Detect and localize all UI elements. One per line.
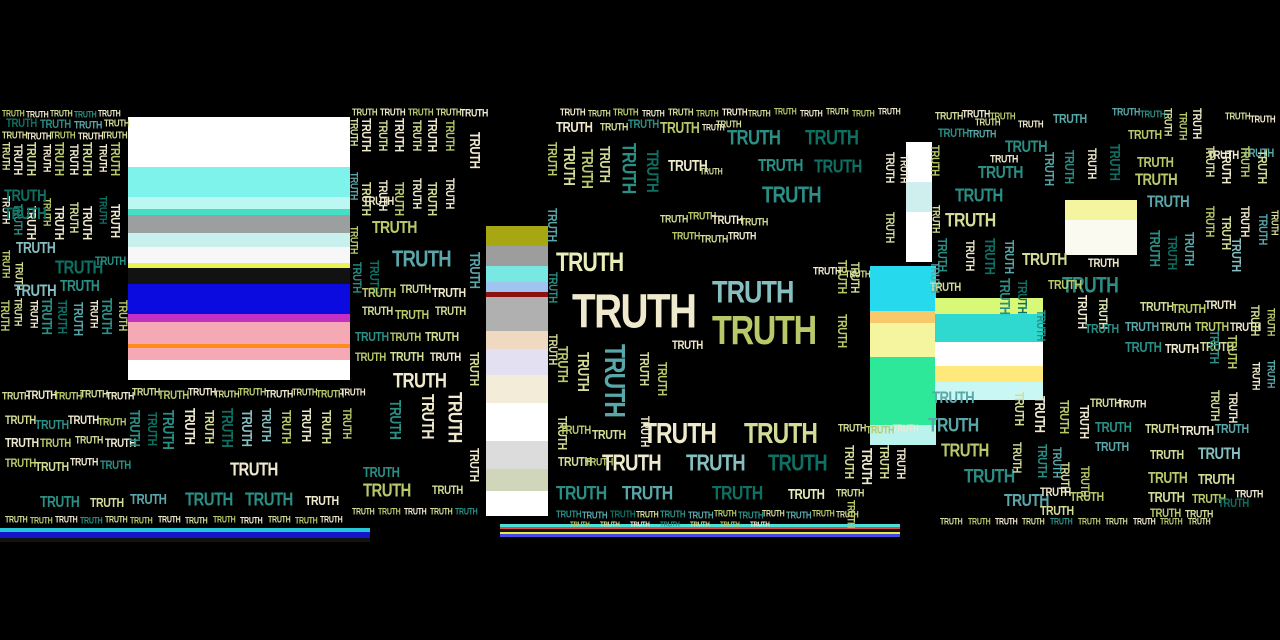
word-truth: TRUTH (355, 330, 389, 343)
word-truth: TRUTH (998, 278, 1012, 314)
word-truth: TRUTH (158, 516, 180, 525)
word-truth: TRUTH (622, 483, 673, 503)
word-truth: TRUTH (1088, 258, 1119, 270)
word-truth: TRUTH (1220, 150, 1233, 184)
word-truth: TRUTH (0, 250, 9, 278)
word-truth: TRUTH (968, 518, 990, 527)
word-truth: TRUTH (1022, 252, 1067, 270)
word-truth: TRUTH (963, 240, 975, 271)
word-truth: TRUTH (130, 492, 166, 506)
glitch-stripe (486, 375, 548, 403)
word-truth: TRUTH (878, 445, 891, 479)
word-truth: TRUTH (613, 108, 638, 118)
word-truth: TRUTH (30, 517, 52, 526)
glitch-stripe (870, 323, 936, 357)
glitch-stripe (128, 233, 350, 247)
word-truth: TRUTH (1190, 108, 1202, 139)
word-truth: TRUTH (714, 510, 736, 519)
word-truth: TRUTH (102, 131, 127, 141)
word-truth: TRUTH (560, 425, 591, 437)
word-truth: TRUTH (1264, 308, 1275, 336)
word-truth: TRUTH (1225, 112, 1250, 122)
word-truth: TRUTH (35, 460, 69, 473)
word-truth: TRUTH (1050, 518, 1072, 527)
word-truth: TRUTH (700, 235, 728, 246)
word-truth: TRUTH (26, 390, 57, 402)
word-truth: TRUTH (1249, 362, 1260, 390)
word-truth: TRUTH (105, 516, 127, 525)
word-truth: TRUTH (35, 418, 69, 431)
word-truth: TRUTH (280, 410, 293, 444)
word-truth: TRUTH (556, 510, 581, 520)
word-truth: TRUTH (836, 314, 849, 348)
word-truth: TRUTH (893, 424, 918, 434)
word-truth: TRUTH (372, 220, 417, 238)
word-truth: TRUTH (592, 428, 626, 441)
word-truth: TRUTH (1118, 400, 1146, 411)
glitch-stripe (128, 197, 350, 209)
word-truth: TRUTH (728, 232, 756, 243)
word-truth: TRUTH (712, 215, 743, 227)
word-truth: TRUTH (432, 286, 466, 299)
word-truth: TRUTH (866, 426, 894, 437)
word-truth: TRUTH (744, 419, 817, 448)
word-truth: TRUTH (1180, 424, 1214, 437)
word-truth: TRUTH (1205, 300, 1236, 312)
word-truth: TRUTH (836, 489, 864, 500)
word-truth: TRUTH (1040, 487, 1071, 499)
word-truth: TRUTH (435, 306, 466, 318)
word-truth: TRUTH (1188, 518, 1210, 527)
word-truth: TRUTH (55, 516, 77, 525)
word-truth: TRUTH (1256, 150, 1269, 184)
word-truth: TRUTH (98, 418, 126, 429)
word-truth: TRUTH (860, 448, 874, 484)
word-truth: TRUTH (628, 119, 659, 131)
word-truth: TRUTH (1058, 400, 1071, 434)
word-truth: TRUTH (5, 436, 39, 449)
word-truth: TRUTH (762, 184, 821, 207)
word-truth: TRUTH (940, 518, 962, 527)
word-truth: TRUTH (1095, 440, 1129, 453)
word-truth: TRUTH (100, 460, 131, 472)
word-truth: TRUTH (80, 390, 108, 401)
word-truth: TRUTH (1176, 112, 1187, 140)
word-truth: TRUTH (546, 208, 559, 242)
word-truth: TRUTH (1085, 322, 1119, 335)
word-truth: TRUTH (1147, 194, 1189, 211)
word-truth: TRUTH (1050, 447, 1062, 478)
word-truth: TRUTH (106, 392, 134, 403)
word-truth: TRUTH (393, 371, 446, 392)
word-truth: TRUTH (340, 388, 365, 398)
word-truth: TRUTH (690, 521, 710, 529)
word-truth: TRUTH (600, 123, 628, 134)
word-truth: TRUTH (560, 108, 585, 118)
word-truth: TRUTH (843, 445, 856, 479)
word-truth: TRUTH (305, 494, 339, 507)
word-truth: TRUTH (1230, 238, 1243, 272)
word-truth: TRUTH (844, 500, 855, 528)
word-truth: TRUTH (40, 298, 54, 334)
word-truth: TRUTH (935, 112, 963, 123)
word-truth: TRUTH (1053, 112, 1087, 125)
word-truth: TRUTH (894, 448, 906, 479)
word-truth: TRUTH (468, 448, 481, 482)
word-truth: TRUTH (786, 511, 811, 521)
word-truth: TRUTH (748, 110, 770, 119)
word-truth: TRUTH (556, 250, 623, 276)
word-truth: TRUTH (1165, 342, 1199, 355)
word-truth: TRUTH (1043, 152, 1056, 186)
word-truth: TRUTH (363, 481, 411, 500)
word-truth: TRUTH (109, 204, 122, 238)
glitch-stripe (128, 314, 350, 322)
word-truth: TRUTH (975, 118, 1000, 128)
glitch-stripe (0, 538, 370, 542)
word-truth: TRUTH (932, 390, 974, 407)
word-truth: TRUTH (146, 412, 159, 446)
word-truth: TRUTH (582, 511, 607, 521)
word-truth: TRUTH (964, 466, 1015, 486)
word-truth: TRUTH (1148, 470, 1187, 485)
word-truth: TRUTH (96, 144, 107, 172)
glitch-band (1065, 200, 1137, 255)
word-truth: TRUTH (1095, 420, 1131, 434)
word-truth: TRUTH (556, 346, 570, 382)
word-truth: TRUTH (668, 108, 693, 118)
word-truth: TRUTH (390, 350, 424, 363)
word-truth: TRUTH (430, 352, 461, 364)
word-truth: TRUTH (812, 510, 834, 519)
word-truth: TRUTH (638, 352, 651, 386)
glitch-stripe (935, 314, 1043, 342)
word-truth: TRUTH (388, 400, 403, 439)
word-truth: TRUTH (185, 517, 207, 526)
word-truth: TRUTH (1256, 214, 1268, 245)
word-truth: TRUTH (774, 108, 796, 117)
word-truth: TRUTH (929, 205, 940, 233)
word-truth: TRUTH (814, 157, 862, 176)
word-truth: TRUTH (78, 132, 103, 142)
word-truth: TRUTH (395, 308, 429, 321)
word-truth: TRUTH (1108, 144, 1122, 180)
word-truth: TRUTH (800, 110, 822, 119)
word-truth: TRUTH (883, 212, 895, 243)
word-truth: TRUTH (1226, 392, 1238, 423)
word-truth: TRUTH (11, 144, 23, 175)
word-truth: TRUTH (100, 298, 114, 334)
word-truth: TRUTH (572, 288, 695, 336)
glitch-stripe (500, 534, 900, 537)
glitch-stripe (128, 247, 350, 263)
word-truth: TRUTH (630, 521, 650, 529)
word-truth: TRUTH (826, 108, 848, 117)
word-truth: TRUTH (95, 256, 126, 268)
word-truth: TRUTH (70, 458, 98, 469)
word-truth: TRUTH (941, 441, 989, 460)
word-truth: TRUTH (158, 390, 189, 402)
word-truth: TRUTH (4, 188, 46, 205)
word-truth: TRUTH (546, 142, 559, 176)
word-truth: TRUTH (1048, 278, 1082, 291)
word-truth: TRUTH (1248, 305, 1260, 336)
glitch-stripe (128, 167, 350, 197)
word-truth: TRUTH (40, 494, 79, 509)
word-truth: TRUTH (1040, 504, 1074, 517)
word-truth: TRUTH (750, 521, 770, 529)
word-truth: TRUTH (426, 118, 439, 152)
word-truth: TRUTH (1198, 472, 1234, 486)
word-truth: TRUTH (300, 408, 313, 442)
word-truth: TRUTH (1016, 280, 1029, 314)
word-truth: TRUTH (104, 119, 129, 129)
word-truth: TRUTH (455, 508, 477, 517)
word-truth: TRUTH (805, 128, 858, 149)
glitch-stripe (128, 268, 350, 284)
word-truth: TRUTH (845, 270, 870, 280)
word-truth: TRUTH (436, 108, 461, 118)
word-truth: TRUTH (53, 142, 66, 176)
word-truth: TRUTH (762, 510, 784, 519)
word-truth: TRUTH (1105, 518, 1127, 527)
word-truth: TRUTH (1250, 115, 1275, 125)
word-truth: TRUTH (1070, 490, 1104, 503)
word-truth: TRUTH (644, 150, 661, 192)
word-truth: TRUTH (268, 516, 290, 525)
word-truth: TRUTH (360, 118, 373, 152)
word-truth: TRUTH (1264, 360, 1275, 388)
word-truth: TRUTH (580, 149, 595, 188)
word-truth: TRUTH (363, 196, 394, 208)
word-truth: TRUTH (660, 510, 685, 520)
word-truth: TRUTH (727, 128, 780, 149)
word-truth: TRUTH (1203, 146, 1215, 177)
glitch-stripe (486, 331, 548, 349)
word-truth: TRUTH (68, 415, 99, 427)
word-truth: TRUTH (696, 110, 718, 119)
word-truth: TRUTH (556, 120, 592, 134)
word-truth: TRUTH (1161, 108, 1172, 136)
word-truth: TRUTH (260, 408, 273, 442)
glitch-stripe (486, 349, 548, 375)
word-truth: TRUTH (362, 306, 393, 318)
word-truth: TRUTH (1148, 230, 1162, 266)
word-truth: TRUTH (53, 206, 66, 240)
word-truth: TRUTH (1140, 300, 1174, 313)
word-truth: TRUTH (183, 408, 197, 444)
word-truth: TRUTH (245, 490, 293, 509)
word-truth: TRUTH (1172, 302, 1206, 315)
word-truth: TRUTH (619, 143, 639, 194)
word-truth: TRUTH (660, 120, 699, 135)
word-truth: TRUTH (688, 511, 713, 521)
glitch-band (870, 266, 936, 445)
word-truth: TRUTH (1183, 232, 1196, 266)
word-truth: TRUTH (238, 388, 266, 399)
glitch-stripe (870, 311, 936, 323)
word-truth: TRUTH (109, 142, 122, 176)
word-truth: TRUTH (1160, 518, 1182, 527)
word-truth: TRUTH (445, 392, 465, 443)
word-truth: TRUTH (74, 111, 96, 120)
word-truth: TRUTH (352, 108, 377, 118)
word-truth: TRUTH (1003, 240, 1016, 274)
glitch-stripe (128, 215, 350, 233)
word-truth: TRUTH (897, 155, 908, 183)
word-truth: TRUTH (376, 120, 388, 151)
word-truth: TRUTH (788, 487, 824, 501)
word-truth: TRUTH (1018, 120, 1043, 130)
word-truth: TRUTH (25, 142, 38, 176)
word-truth: TRUTH (128, 410, 142, 446)
word-truth: TRUTH (1133, 518, 1155, 527)
word-truth: TRUTH (443, 120, 455, 151)
word-truth: TRUTH (1013, 392, 1026, 426)
word-truth: TRUTH (588, 110, 610, 119)
glitch-stripe (935, 366, 1043, 382)
word-truth: TRUTH (643, 419, 716, 448)
glitch-stripe (128, 348, 350, 360)
word-truth: TRUTH (570, 521, 590, 529)
word-truth: TRUTH (936, 238, 949, 272)
word-truth: TRUTH (562, 146, 577, 185)
word-truth: TRUTH (347, 226, 358, 254)
word-truth: TRUTH (265, 390, 293, 401)
word-truth: TRUTH (1063, 150, 1076, 184)
word-truth: TRUTH (1034, 310, 1046, 341)
word-truth: TRUTH (214, 390, 239, 400)
word-truth: TRUTH (185, 490, 233, 509)
glitch-stripe (128, 117, 350, 167)
word-truth: TRUTH (1226, 335, 1239, 369)
word-cloud-canvas: TRUTHTRUTHTRUTHTRUTHTRUTHTRUTHTRUTHTRUTH… (0, 0, 1280, 640)
word-truth: TRUTH (378, 508, 400, 517)
word-truth: TRUTH (1022, 518, 1044, 527)
word-truth: TRUTH (1010, 442, 1022, 473)
word-truth: TRUTH (1135, 172, 1177, 189)
word-truth: TRUTH (1128, 128, 1162, 141)
word-truth: TRUTH (672, 232, 700, 243)
glitch-stripe (486, 469, 548, 491)
word-truth: TRUTH (67, 144, 79, 175)
word-truth: TRUTH (930, 282, 961, 294)
glitch-band (486, 226, 548, 516)
word-truth: TRUTH (40, 438, 71, 450)
word-truth: TRUTH (686, 452, 745, 475)
glitch-stripe (128, 284, 350, 314)
word-truth: TRUTH (878, 108, 900, 117)
word-truth: TRUTH (393, 182, 406, 216)
word-truth: TRUTH (1125, 320, 1159, 333)
word-truth: TRUTH (392, 248, 451, 271)
word-truth: TRUTH (81, 206, 94, 240)
word-truth: TRUTH (80, 517, 102, 526)
word-truth: TRUTH (1145, 422, 1179, 435)
word-truth: TRUTH (430, 508, 452, 517)
word-truth: TRUTH (26, 132, 51, 142)
word-truth: TRUTH (1085, 148, 1097, 179)
glitch-stripe (870, 357, 936, 425)
word-truth: TRUTH (1208, 330, 1221, 364)
word-truth: TRUTH (660, 521, 680, 529)
word-truth: TRUTH (4, 206, 46, 223)
word-truth: TRUTH (1203, 206, 1215, 237)
word-truth: TRUTH (1215, 422, 1249, 435)
word-truth: TRUTH (1166, 236, 1179, 270)
word-truth: TRUTH (116, 300, 128, 331)
word-truth: TRUTH (660, 215, 688, 226)
word-truth: TRUTH (418, 394, 436, 439)
word-truth: TRUTH (556, 483, 607, 503)
word-truth: TRUTH (995, 518, 1017, 527)
word-truth: TRUTH (87, 300, 98, 328)
word-truth: TRUTH (292, 388, 317, 398)
word-truth: TRUTH (1238, 206, 1250, 237)
word-truth: TRUTH (598, 146, 612, 182)
word-truth: TRUTH (1238, 146, 1250, 177)
word-truth: TRUTH (0, 300, 10, 331)
word-truth: TRUTH (883, 152, 895, 183)
word-truth: TRUTH (738, 511, 763, 521)
word-truth: TRUTH (968, 130, 996, 141)
word-truth: TRUTH (610, 510, 635, 520)
word-truth: TRUTH (602, 452, 661, 475)
word-truth: TRUTH (712, 483, 763, 503)
word-truth: TRUTH (443, 178, 455, 209)
word-truth: TRUTH (1208, 390, 1220, 421)
word-truth: TRUTH (758, 158, 803, 176)
glitch-stripe (486, 226, 548, 246)
word-truth: TRUTH (81, 142, 94, 176)
word-truth: TRUTH (928, 145, 940, 176)
word-truth: TRUTH (813, 267, 841, 278)
word-truth: TRUTH (1148, 490, 1184, 504)
word-truth: TRUTH (426, 182, 439, 216)
word-truth: TRUTH (240, 410, 254, 446)
word-truth: TRUTH (700, 168, 722, 177)
word-truth: TRUTH (1125, 340, 1161, 354)
word-truth: TRUTH (852, 110, 874, 119)
word-truth: TRUTH (1160, 322, 1191, 334)
word-truth: TRUTH (600, 521, 620, 529)
glitch-stripe (486, 403, 548, 441)
word-truth: TRUTH (188, 388, 216, 399)
word-truth: TRUTH (1090, 398, 1121, 410)
word-truth: TRUTH (161, 410, 176, 449)
word-truth: TRUTH (130, 517, 152, 526)
word-truth: TRUTH (983, 238, 997, 274)
glitch-stripe (486, 246, 548, 266)
word-truth: TRUTH (54, 392, 82, 403)
word-truth: TRUTH (468, 132, 482, 168)
word-truth: TRUTH (576, 352, 591, 391)
word-truth: TRUTH (410, 178, 422, 209)
word-truth: TRUTH (838, 424, 866, 435)
word-truth: TRUTH (67, 202, 79, 233)
word-truth: TRUTH (132, 388, 160, 399)
word-truth: TRUTH (468, 352, 481, 386)
word-truth: TRUTH (768, 452, 827, 475)
glitch-band (0, 528, 370, 542)
word-truth: TRUTH (955, 186, 1003, 205)
word-truth: TRUTH (213, 516, 235, 525)
word-truth: TRUTH (938, 128, 969, 140)
word-truth: TRUTH (363, 465, 399, 479)
word-truth: TRUTH (1036, 444, 1049, 478)
word-truth: TRUTH (1218, 498, 1249, 510)
word-truth: TRUTH (295, 517, 317, 526)
